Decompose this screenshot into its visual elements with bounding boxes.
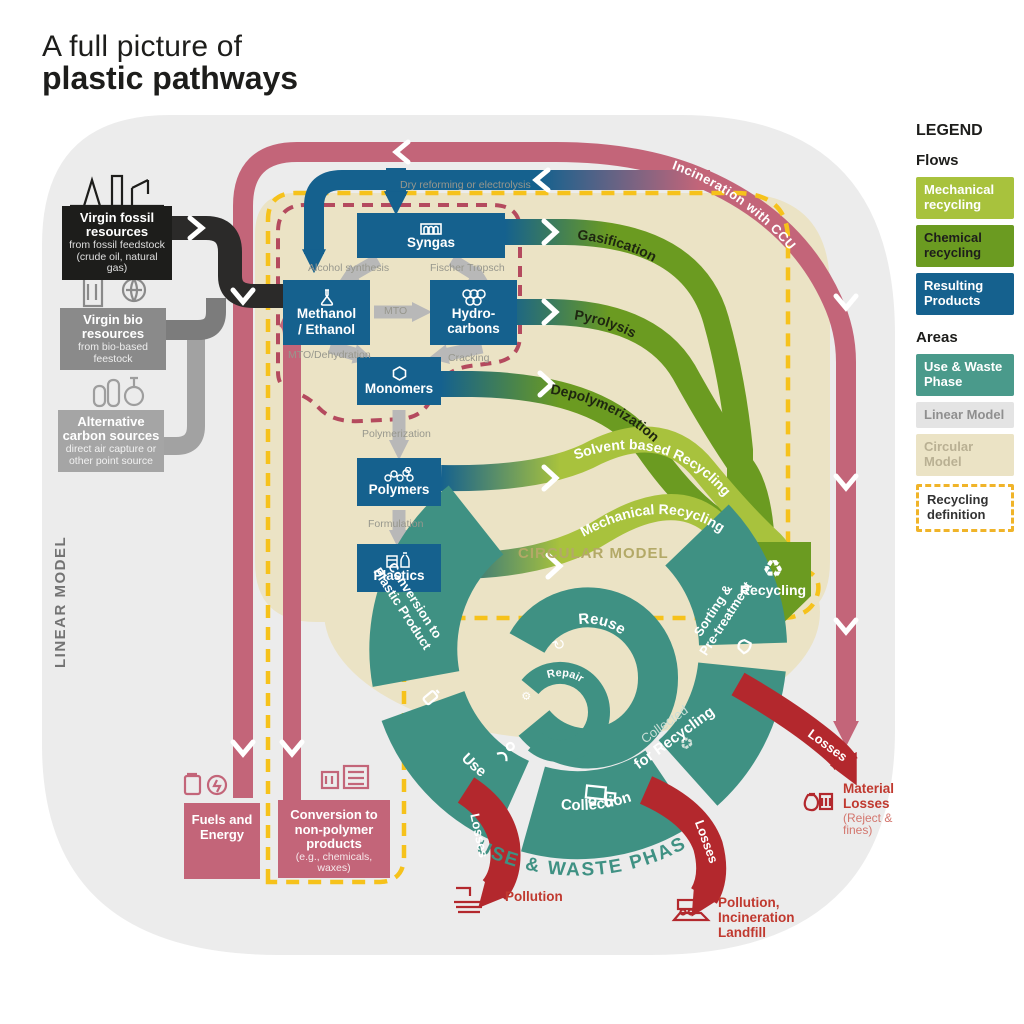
- pil-l3: Landfill: [718, 926, 795, 941]
- label-mto-dehydration: MTO/Dehydration: [288, 349, 371, 361]
- source-alt-carbon-title: Alternative carbon sources: [62, 415, 160, 443]
- source-alt-carbon-subtitle: direct air capture or other point source: [62, 444, 160, 467]
- hexagon-icon: [392, 366, 407, 381]
- node-methanol: Methanol / Ethanol: [283, 280, 370, 345]
- legend-title: LEGEND: [916, 122, 1016, 140]
- material-losses-label: Material Losses (Reject & fines): [843, 782, 909, 837]
- source-virgin-bio-subtitle: from bio-based feestock: [64, 342, 162, 365]
- output-nonpolymer-title: Conversion to non-polymer products: [282, 808, 386, 852]
- node-hydrocarbons-l2: carbons: [447, 322, 500, 336]
- label-fischer-tropsch: Fischer Tropsch: [430, 262, 505, 274]
- source-virgin-bio: Virgin bio resources from bio-based fees…: [60, 308, 166, 370]
- node-syngas: Syngas: [357, 213, 505, 258]
- pollution-incineration-label: Pollution, Incineration Landfill: [718, 896, 795, 941]
- material-losses-title: Material Losses: [843, 782, 909, 812]
- page-title: A full picture of plastic pathways: [42, 30, 298, 97]
- legend-areas-heading: Areas: [916, 329, 1016, 346]
- material-losses-subtitle: (Reject & fines): [843, 812, 909, 837]
- legend-chip-linear: Linear Model: [916, 402, 1014, 429]
- legend-chip-recycling-def: Recycling definition: [916, 484, 1014, 532]
- label-alcohol-synthesis: Alcohol synthesis: [308, 262, 389, 274]
- source-virgin-fossil: Virgin fossil resources from fossil feed…: [62, 206, 172, 280]
- output-fuels-title: Fuels and Energy: [188, 813, 256, 842]
- polymer-chain-icon: [384, 467, 414, 482]
- source-alt-carbon: Alternative carbon sources direct air ca…: [58, 410, 164, 472]
- legend: LEGEND Flows Mechanical recycling Chemic…: [916, 122, 1016, 532]
- node-methanol-l2: / Ethanol: [298, 323, 355, 337]
- label-dry-reforming: Dry reforming or electrolysis: [400, 179, 531, 191]
- node-monomers-label: Monomers: [365, 382, 433, 396]
- node-syngas-label: Syngas: [407, 236, 455, 250]
- flask-icon: [319, 288, 335, 306]
- source-virgin-fossil-title: Virgin fossil resources: [66, 211, 168, 239]
- infographic-plastic-pathways: Gasification Pyrolysis Depolymerization …: [0, 0, 1024, 1024]
- output-fuels-energy: Fuels and Energy: [184, 803, 260, 879]
- legend-chip-use-waste: Use & Waste Phase: [916, 354, 1014, 396]
- pil-l1: Pollution,: [718, 896, 795, 911]
- legend-chip-resulting: Resulting Products: [916, 273, 1014, 315]
- legend-chip-mechanical: Mechanical recycling: [916, 177, 1014, 219]
- label-mto: MTO: [384, 305, 407, 317]
- legend-flows-heading: Flows: [916, 152, 1016, 169]
- node-monomers: Monomers: [357, 357, 441, 405]
- source-virgin-fossil-subtitle: from fossil feedstock (crude oil, natura…: [66, 240, 168, 275]
- label-cracking: Cracking: [448, 352, 489, 364]
- title-line1: A full picture of: [42, 30, 298, 64]
- legend-chip-circular: Circular Model: [916, 434, 1014, 476]
- node-methanol-l1: Methanol: [297, 307, 356, 321]
- label-polymerization: Polymerization: [362, 428, 431, 440]
- legend-chip-chemical: Chemical recycling: [916, 225, 1014, 267]
- nonpolymer-pipe: [283, 318, 292, 800]
- node-hydrocarbons-l1: Hydro-: [452, 307, 496, 321]
- linear-model-label: LINEAR MODEL: [52, 488, 69, 668]
- title-line2: plastic pathways: [42, 60, 298, 97]
- circular-model-label: CIRCULAR MODEL: [518, 545, 698, 562]
- pil-l2: Incineration: [718, 911, 795, 926]
- node-polymers: Polymers: [357, 458, 441, 506]
- source-virgin-bio-title: Virgin bio resources: [64, 313, 162, 341]
- diagram-canvas: Gasification Pyrolysis Depolymerization …: [0, 0, 1024, 1024]
- syngas-plant-icon: [419, 220, 443, 235]
- pollution-label: Pollution: [505, 890, 563, 905]
- output-nonpolymer-subtitle: (e.g., chemicals, waxes): [282, 852, 386, 875]
- node-hydrocarbons: Hydro- carbons: [430, 280, 517, 345]
- molecule-rings-icon: [460, 289, 488, 306]
- node-polymers-label: Polymers: [369, 483, 430, 497]
- label-formulation: Formulation: [368, 518, 423, 530]
- output-nonpolymer: Conversion to non-polymer products (e.g.…: [278, 800, 390, 878]
